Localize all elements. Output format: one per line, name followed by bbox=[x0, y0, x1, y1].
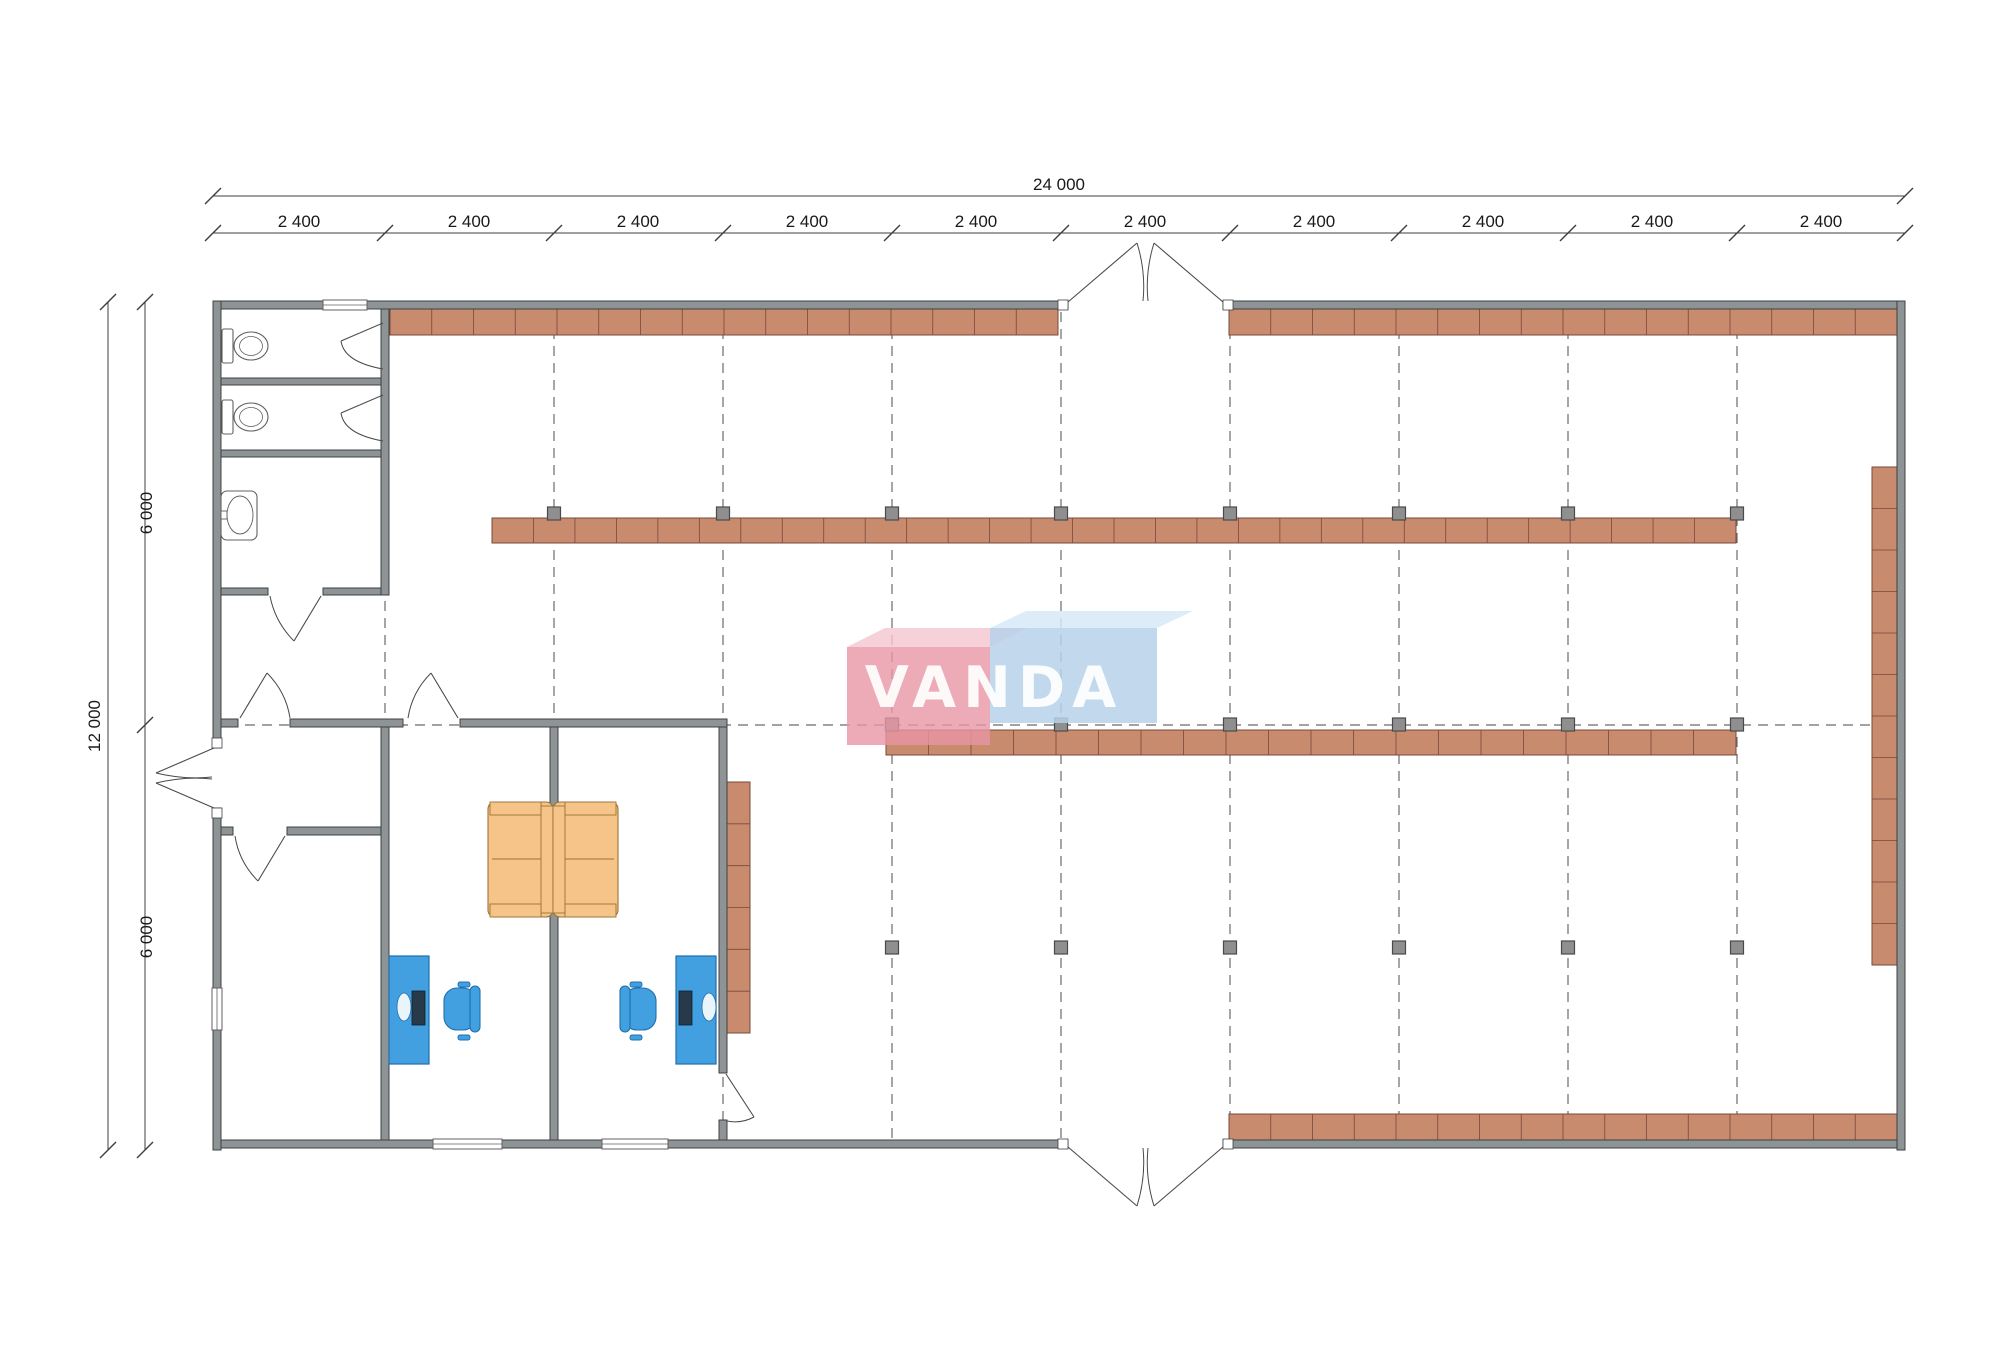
office-a-window bbox=[433, 1139, 502, 1149]
entrance-top-door-left-leaf bbox=[1068, 243, 1137, 302]
toilet-tank bbox=[222, 400, 233, 434]
stall-2-door-leaf bbox=[341, 395, 383, 413]
column-row-upper-column bbox=[1731, 507, 1744, 520]
office-top-wall-b bbox=[290, 719, 403, 727]
entrance-top-door-right-swing-arc bbox=[1147, 243, 1154, 301]
door-jamb bbox=[1223, 1139, 1233, 1149]
office-a-door bbox=[408, 673, 458, 718]
stall-1-door bbox=[341, 323, 383, 369]
office-east-wall-stub bbox=[719, 1120, 727, 1140]
column-row-lower-column bbox=[1055, 941, 1068, 954]
sink-tap bbox=[221, 511, 227, 519]
washroom-top-wall bbox=[221, 450, 381, 457]
office-a-door-leaf bbox=[431, 673, 458, 718]
entrance-top-door-right-leaf bbox=[1154, 243, 1223, 302]
desk-b-keyboard bbox=[702, 993, 716, 1021]
column-row-upper-column bbox=[886, 507, 899, 520]
floor-plan-drawing: 24 0002 4002 4002 4002 4002 4002 4002 40… bbox=[0, 0, 2000, 1358]
toilet-2 bbox=[222, 400, 268, 434]
column-row-upper-column bbox=[1562, 507, 1575, 520]
column-row-upper-column bbox=[717, 507, 730, 520]
chair-a-armrest bbox=[458, 1035, 470, 1040]
column-row-lower-column bbox=[1731, 941, 1744, 954]
storage-window bbox=[212, 988, 222, 1030]
desk-a-keyboard bbox=[397, 993, 411, 1021]
dimension-label-bay: 2 400 bbox=[1800, 212, 1843, 231]
entrance-left-door-upper bbox=[156, 748, 214, 778]
office-partition bbox=[550, 727, 558, 1140]
left-wall-upper bbox=[213, 301, 221, 748]
office-top-wall-a bbox=[221, 719, 238, 727]
floor-plan-page: 24 0002 4002 4002 4002 4002 4002 4002 40… bbox=[0, 0, 2000, 1358]
desk-a bbox=[389, 956, 429, 1064]
chair-b bbox=[620, 982, 656, 1040]
logo-blue-box-top bbox=[990, 611, 1193, 628]
vestibule-south-door-swing-arc bbox=[235, 836, 258, 881]
vestibule-south-door bbox=[235, 836, 285, 881]
office-west-wall bbox=[381, 727, 389, 1140]
dimension-left-total: 12 000 bbox=[85, 294, 116, 1158]
column-row-lower-column bbox=[1562, 941, 1575, 954]
sofa-right bbox=[553, 802, 618, 917]
column-row-upper-column bbox=[1224, 507, 1237, 520]
washroom-door-leaf bbox=[294, 596, 321, 641]
office-b-door bbox=[726, 1074, 754, 1122]
office-east-wall bbox=[719, 727, 727, 1073]
column-row-center-column bbox=[1562, 718, 1575, 731]
shelf-top-west bbox=[390, 309, 1058, 335]
entrance-left-door-lower-swing-arc bbox=[156, 778, 212, 783]
sofa-left bbox=[488, 802, 553, 917]
desk-b bbox=[676, 956, 716, 1064]
vanda-logo-text: VANDA bbox=[865, 655, 1124, 721]
washroom-door-swing-arc bbox=[270, 596, 294, 641]
dimension-label-bay: 2 400 bbox=[1462, 212, 1505, 231]
sofa-left-armrest bbox=[490, 904, 541, 917]
entrance-left-door-upper-swing-arc bbox=[156, 773, 212, 778]
entrance-top-door-left bbox=[1068, 243, 1144, 302]
shelf-right-wall bbox=[1872, 467, 1897, 965]
dimension-left-bays: 6 0006 000 bbox=[137, 294, 156, 1158]
sink bbox=[221, 491, 257, 540]
sofa-left-backrest bbox=[541, 806, 553, 913]
door-jamb bbox=[1058, 300, 1068, 310]
stall-2-door-swing-arc bbox=[341, 413, 383, 441]
entrance-bottom-door-right bbox=[1147, 1147, 1223, 1206]
chair-b-armrest bbox=[630, 982, 642, 987]
dimension-label-bay: 2 400 bbox=[955, 212, 998, 231]
sofa-right-backrest bbox=[553, 806, 565, 913]
dimension-label-bay: 2 400 bbox=[1124, 212, 1167, 231]
dimension-top-bays: 2 4002 4002 4002 4002 4002 4002 4002 400… bbox=[205, 212, 1913, 241]
column-row-center-column bbox=[1224, 718, 1237, 731]
door-jamb bbox=[212, 738, 222, 748]
column-row-upper-column bbox=[1055, 507, 1068, 520]
column-row-upper-column bbox=[1393, 507, 1406, 520]
office-cabinet bbox=[727, 782, 750, 1033]
door-jamb bbox=[212, 808, 222, 818]
vestibule-south-wall-a bbox=[221, 827, 233, 835]
office-b-door-swing-arc bbox=[727, 1117, 754, 1122]
chair-b-armrest bbox=[630, 1035, 642, 1040]
chair-a-backrest bbox=[470, 986, 480, 1032]
toilet-south-wall-b bbox=[323, 588, 381, 595]
vestibule-south-door-leaf bbox=[258, 836, 285, 881]
shelf-top-east bbox=[1229, 309, 1897, 335]
office-b-door-leaf bbox=[726, 1074, 754, 1117]
sofa-right-armrest bbox=[565, 802, 616, 815]
dimension-label-bay: 2 400 bbox=[448, 212, 491, 231]
door-jamb bbox=[1223, 300, 1233, 310]
entrance-top-door-right bbox=[1147, 243, 1223, 302]
entrance-bottom-door-left bbox=[1068, 1147, 1144, 1206]
bottom-wall-east bbox=[1223, 1140, 1905, 1148]
entrance-left-door-upper-leaf bbox=[156, 748, 214, 773]
shelf-middle-upper bbox=[492, 518, 1736, 543]
desk-b-computer bbox=[679, 991, 692, 1025]
sofa-right-armrest bbox=[565, 904, 616, 917]
dimension-label-bay: 2 400 bbox=[786, 212, 829, 231]
toilet-1 bbox=[222, 329, 268, 363]
stall-1-door-swing-arc bbox=[341, 341, 383, 369]
entrance-bottom-door-left-leaf bbox=[1068, 1147, 1137, 1206]
left-wall-lower bbox=[213, 808, 221, 1150]
dimension-label-bay: 2 400 bbox=[1631, 212, 1674, 231]
stall-2-door bbox=[341, 395, 383, 441]
vestibule-north-door bbox=[240, 673, 290, 718]
office-top-wall-c bbox=[460, 719, 727, 727]
stall-1-door-leaf bbox=[341, 323, 383, 341]
column-row-center-column bbox=[1731, 718, 1744, 731]
dimension-label-half-height: 6 000 bbox=[137, 916, 156, 959]
stall-partition-1 bbox=[221, 378, 381, 385]
vestibule-south-wall-b bbox=[287, 827, 381, 835]
column-row-lower-column bbox=[1393, 941, 1406, 954]
dimension-label-bay: 2 400 bbox=[278, 212, 321, 231]
entrance-left-door-lower-leaf bbox=[156, 783, 214, 808]
right-wall bbox=[1897, 301, 1905, 1150]
office-a-door-swing-arc bbox=[408, 673, 431, 718]
chair-b-backrest bbox=[620, 986, 630, 1032]
office-b-window bbox=[602, 1139, 668, 1149]
door-jamb bbox=[1058, 1139, 1068, 1149]
shelf-middle-lower bbox=[886, 730, 1736, 755]
entrance-top-door-left-swing-arc bbox=[1137, 243, 1144, 301]
chair-a-armrest bbox=[458, 982, 470, 987]
entrance-left-door-lower bbox=[156, 778, 214, 808]
toilet-window bbox=[323, 300, 367, 310]
shelf-bottom bbox=[1229, 1114, 1897, 1140]
dimension-label-bay: 2 400 bbox=[617, 212, 660, 231]
column-row-lower-column bbox=[886, 941, 899, 954]
column-row-center-column bbox=[1393, 718, 1406, 731]
toilet-east-wall bbox=[381, 309, 389, 595]
entrance-bottom-door-right-leaf bbox=[1154, 1147, 1223, 1206]
dimension-label-total-width: 24 000 bbox=[1033, 175, 1085, 194]
dimension-label-total-height: 12 000 bbox=[85, 700, 104, 752]
vestibule-north-door-leaf bbox=[240, 673, 267, 718]
desk-a-computer bbox=[412, 991, 425, 1025]
top-wall-east bbox=[1223, 301, 1905, 309]
dimension-label-half-height: 6 000 bbox=[137, 492, 156, 535]
vanda-watermark: VANDA bbox=[847, 611, 1193, 745]
chair-a bbox=[444, 982, 480, 1040]
entrance-bottom-door-right-swing-arc bbox=[1147, 1148, 1154, 1206]
sofa-left-armrest bbox=[490, 802, 541, 815]
toilet-tank bbox=[222, 329, 233, 363]
toilet-south-wall-a bbox=[221, 588, 268, 595]
sanitary-fixtures bbox=[221, 329, 268, 540]
dimension-top-total: 24 000 bbox=[205, 175, 1913, 204]
entrance-bottom-door-left-swing-arc bbox=[1137, 1148, 1144, 1206]
washroom-door bbox=[270, 596, 321, 641]
dimension-label-bay: 2 400 bbox=[1293, 212, 1336, 231]
vestibule-north-door-swing-arc bbox=[267, 673, 290, 718]
column-row-lower-column bbox=[1224, 941, 1237, 954]
column-row-upper-column bbox=[548, 507, 561, 520]
